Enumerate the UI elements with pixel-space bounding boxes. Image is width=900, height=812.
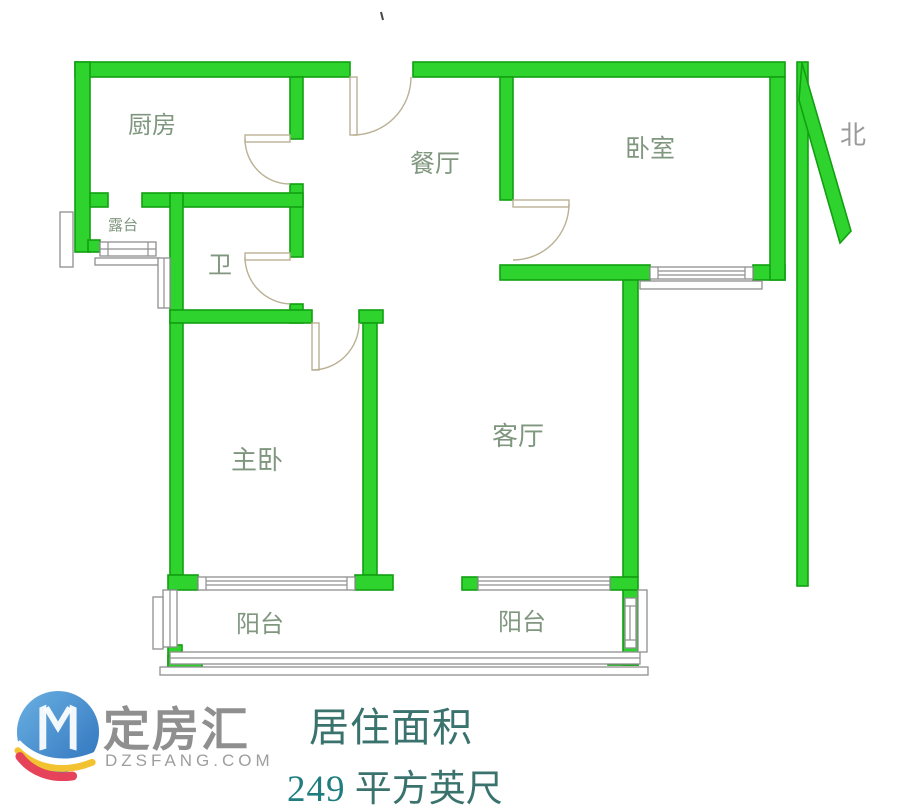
area-unit: 平方英尺 [355,769,503,810]
bath-label: 卫 [208,253,232,279]
dining-label: 餐厅 [410,150,460,178]
master-bedroom-label: 主卧 [231,446,283,475]
balcony-right-label: 阳台 [498,609,546,636]
windows [60,212,762,675]
area-title: 居住面积 [309,695,503,753]
stray-mark [381,12,383,20]
footer: 定房汇 DZSFANG.COM 居住面积 249 平方英尺 [0,683,900,791]
brand-logo-icon [14,687,102,781]
balcony-left-label: 阳台 [236,611,284,638]
area-value: 249 [287,769,346,810]
living-room-label: 客厅 [492,422,544,451]
floor-plan: 厨房 露台 卫 餐厅 卧室 主卧 客厅 阳台 阳台 北 [0,0,900,683]
area-line: 249 平方英尺 [287,758,503,812]
brand-name: 定房汇 [103,691,250,760]
room-labels: 厨房 露台 卫 餐厅 卧室 主卧 客厅 阳台 阳台 北 [108,112,866,638]
area-block: 居住面积 249 平方英尺 [287,695,503,812]
kitchen-label: 厨房 [128,112,176,139]
brand-website: DZSFANG.COM [105,751,274,771]
terrace-label: 露台 [108,217,138,234]
north-label: 北 [840,121,866,150]
bedroom-label: 卧室 [625,135,675,163]
